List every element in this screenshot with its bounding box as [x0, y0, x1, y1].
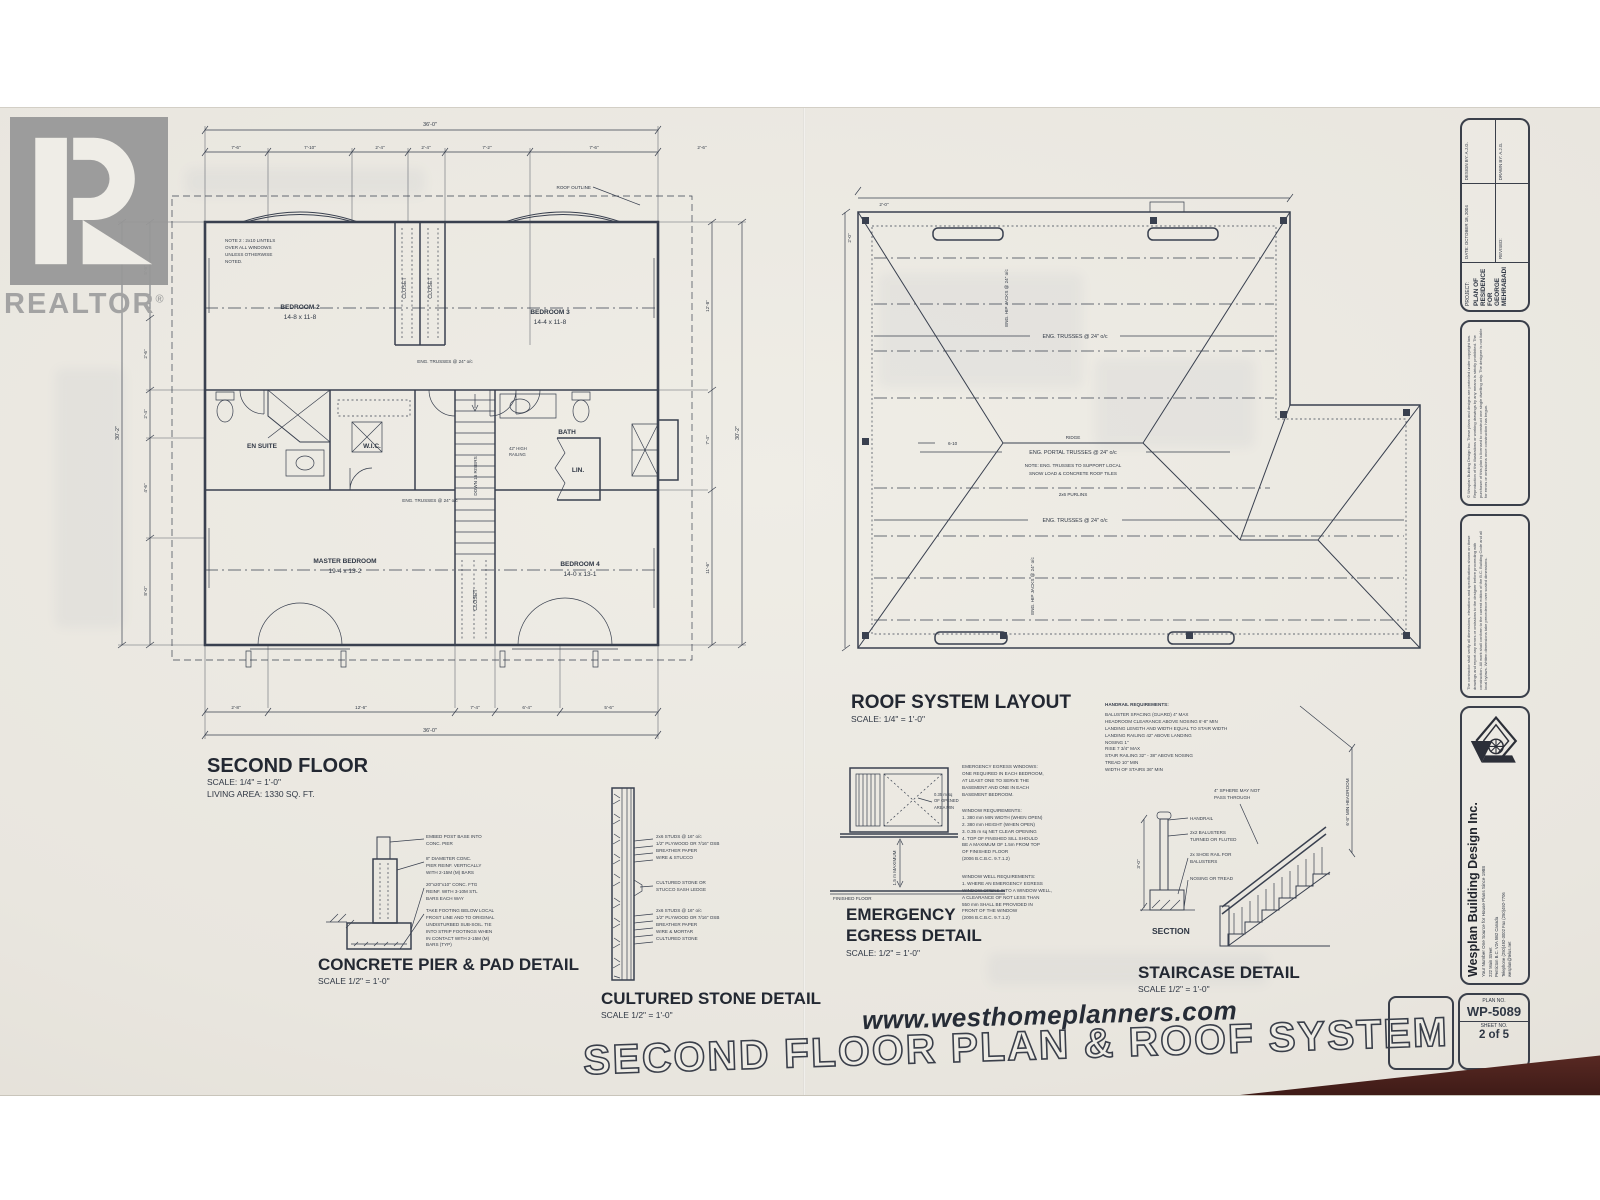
roof-note-2: SNOW LOAD & CONCRETE ROOF TILES — [1029, 471, 1117, 476]
dim-top-4: 2'-4" — [421, 145, 431, 150]
staircase-section-label: SECTION — [1152, 926, 1190, 936]
dim-left-4: 4'-6" — [143, 483, 148, 493]
realtor-r-icon — [10, 117, 168, 285]
sheet-no-value: 2 of 5 — [1460, 1029, 1528, 1041]
dim-left-3: 2'-4" — [143, 409, 148, 419]
cultured-stone-detail-drawing: CULTURED STONE DETAIL SCALE 1/2" = 1'-0" — [601, 788, 821, 1020]
pier-note-1: EMBED POST BASE INTO CONC. PIER — [426, 834, 536, 848]
dim-right-3: 11'-6" — [705, 562, 710, 574]
dim-top-right: 2'-6" — [697, 145, 707, 150]
room-label-bedroom4: BEDROOM 4 — [560, 561, 600, 568]
dim-bot-1: 2'-8" — [231, 705, 241, 710]
floor-plan-drawing: 36'-0" 7'-6" 7'-10" 2'-4" 2'-4" 7'-2" 7'… — [115, 122, 746, 799]
dim-right-1: 12'-8" — [705, 300, 710, 312]
staircase-scale: SCALE 1/2" = 1'-0" — [1138, 984, 1210, 994]
floor-plan-heading: SECOND FLOOR — [207, 755, 369, 777]
dim-left-total: 30'-2" — [115, 426, 121, 440]
room-label-ensuite: EN SUITE — [247, 443, 278, 450]
roof-plan-scale: SCALE: 1/4" = 1'-0" — [851, 714, 925, 724]
room-label-master: MASTER BEDROOM — [313, 558, 376, 565]
firm-logo-icon — [1469, 714, 1523, 768]
dim-top-1: 7'-6" — [231, 145, 241, 150]
dim-bot-2: 12'-6" — [355, 705, 367, 710]
staircase-handrail-label: HANDRAIL — [1190, 816, 1250, 823]
stone-notes-top: 2x6 STUDS @ 16" o/c 1/2" PLYWOOD OR 7/16… — [656, 834, 776, 862]
roof-ridge-label: RIDGE — [1066, 435, 1081, 440]
room-label-wic: W.I.C. — [363, 443, 381, 450]
lintel-note: NOTE 2 : 2x10 LINTELS OVER ALL WINDOWS U… — [225, 238, 320, 266]
egress-sill-dim: 1.5 m MAXIMUM — [892, 850, 897, 885]
pier-note-3: 20"x20"x10" CONC. FTG REINF. WITH 3-10M … — [426, 882, 536, 903]
roof-truss-label-2: ENG. TRUSSES @ 24" o/c — [1042, 518, 1107, 524]
roof-hipjack-label-1: ENG. HIP JACKS @ 24" o/c — [1004, 269, 1009, 327]
egress-heading-2: EGRESS DETAIL — [846, 926, 982, 945]
handrail-req-lines: BALUSTER SPACING (GUARD) 4" MAX HEADROOM… — [1105, 712, 1305, 774]
staircase-headroom-label: 6'-8" MIN HEADROOM — [1345, 778, 1350, 825]
roof-overhang-dim-2: 2'-0" — [847, 233, 852, 243]
railing-note: 42" HIGH RAILING — [509, 446, 555, 459]
titleblock-firm-box: Wesplan Building Design Inc. Your Number… — [1460, 706, 1530, 985]
dim-bottom-total: 36'-0" — [423, 728, 437, 734]
firm-address: 222 Main Street Penticton B.C. V2A 5B2 C… — [1488, 774, 1513, 977]
egress-heading-1: EMERGENCY — [846, 905, 956, 924]
project-line2: GEORGE MEHRABADI — [1494, 267, 1508, 306]
realtor-watermark-text: REALTOR® — [4, 288, 194, 321]
roof-truss-label-1: ENG. TRUSSES @ 24" o/c — [1042, 334, 1107, 340]
room-label-bedroom3: BEDROOM 3 — [530, 309, 570, 316]
project-heading: PROJECT: — [1465, 267, 1471, 306]
dim-top-total: 36'-0" — [423, 122, 437, 128]
staircase-shoe-label: 2x SHOE RAIL FOR BALUSTERS — [1190, 852, 1250, 866]
project-line1: PLAN OF RESIDENCE FOR — [1473, 267, 1494, 306]
dim-top-6: 7'-6" — [589, 145, 599, 150]
room-label-closet-1: CLOSET — [402, 277, 408, 299]
revision-box-empty — [1388, 996, 1454, 1070]
firm-name: Wesplan Building Design Inc. — [1466, 774, 1480, 977]
roof-overhang-dim: 2'-0" — [879, 202, 889, 207]
firm-tagline: Your Number One Source for House Plans S… — [1481, 774, 1486, 977]
dim-top-2: 7'-10" — [304, 145, 316, 150]
photographed-blueprint-page: 36'-0" 7'-6" 7'-10" 2'-4" 2'-4" 7'-2" 7'… — [0, 0, 1600, 1200]
dim-right-2: 7'-4" — [705, 435, 710, 445]
pier-note-4: TAKE FOOTING BELOW LOCAL FROST LINE AND … — [426, 908, 546, 949]
room-label-closet-3: CLOSET — [473, 589, 479, 611]
room-size-bedroom2: 14-8 x 11-8 — [284, 314, 317, 321]
blueprint-paper: 36'-0" 7'-6" 7'-10" 2'-4" 2'-4" 7'-2" 7'… — [0, 107, 1600, 1096]
project-date: DATE: OCTOBER 18, 2004 — [1462, 184, 1495, 262]
roof-note-1: NOTE: ENG. TRUSSES TO SUPPORT LOCAL — [1025, 463, 1122, 468]
registered-mark: ® — [155, 293, 165, 305]
staircase-nosing-label: NOSING OR TREAD — [1190, 876, 1250, 883]
room-label-closet-2: CLOSET — [428, 277, 434, 299]
roof-purlin-label: 2x6 PURLINS — [1059, 492, 1088, 497]
dim-top-5: 7'-2" — [482, 145, 492, 150]
egress-scale: SCALE: 1/2" = 1'-0" — [846, 948, 920, 958]
plan-no-value: WP-5089 — [1460, 1004, 1528, 1019]
roof-span-dim: 6-10 — [948, 441, 958, 446]
dim-left-2: 2'-6" — [143, 349, 148, 359]
realtor-watermark-logo — [10, 117, 168, 285]
truss-label-plan-1: ENG. TRUSSES @ 24" o/c — [417, 359, 473, 364]
roof-outline-label: ROOF OUTLINE — [557, 185, 591, 190]
realtor-wordmark: REALTOR — [4, 288, 155, 320]
dim-top-3: 2'-4" — [375, 145, 385, 150]
pier-detail-heading: CONCRETE PIER & PAD DETAIL — [318, 955, 579, 974]
room-size-bedroom4: 14-0 x 13-1 — [564, 571, 597, 578]
roof-plan-heading: ROOF SYSTEM LAYOUT — [851, 692, 1071, 713]
titleblock-copyright-box: © Wesplan Building Design Inc. These pla… — [1460, 320, 1530, 506]
roof-plan-drawing: 2'-0" 2'-0" 6-10 ENG. TRUSSES @ 24" o/c … — [842, 187, 1420, 724]
staircase-heading: STAIRCASE DETAIL — [1138, 963, 1300, 982]
roof-portal-label: ENG. PORTAL TRUSSES @ 24" o/c — [1029, 450, 1117, 456]
dim-right-total: 30'-2" — [735, 426, 741, 440]
staircase-baluster-label: 2x2 BALUSTERS TURNED OR FLUTED — [1190, 830, 1250, 844]
project-drawn-by: DRAWN BY: A.J.G. — [1495, 120, 1528, 183]
stone-note-mid: CULTURED STONE OR STUCCO SASH LEDGE — [656, 880, 776, 894]
dim-bot-5: 5'-6" — [604, 705, 614, 710]
truss-label-plan-2: ENG. TRUSSES @ 24" o/c — [402, 498, 458, 503]
dim-bot-4: 6'-4" — [522, 705, 532, 710]
titleblock-disclaimer-box: The contractor shall verify all dimensio… — [1460, 514, 1530, 698]
titleblock-project-box: PROJECT: PLAN OF RESIDENCE FOR GEORGE ME… — [1460, 118, 1530, 312]
room-label-bedroom2: BEDROOM 2 — [280, 304, 320, 311]
planno-divider — [1460, 1021, 1528, 1022]
room-label-bath: BATH — [558, 429, 576, 436]
room-size-bedroom3: 14-4 x 11-8 — [534, 319, 567, 326]
egress-para-2: WINDOW REQUIREMENTS: 1. 380 mm MIN WIDTH… — [962, 808, 1142, 863]
floor-plan-area: LIVING AREA: 1330 SQ. FT. — [207, 789, 315, 799]
pier-detail-scale: SCALE 1/2" = 1'-0" — [318, 976, 390, 986]
staircase-sphere-label: 4" SPHERE MAY NOT PASS THROUGH — [1214, 788, 1274, 802]
copyright-text: © Wesplan Building Design Inc. These pla… — [1462, 322, 1528, 504]
stone-detail-scale: SCALE 1/2" = 1'-0" — [601, 1010, 673, 1020]
stair-label: DOWN 16 RISERS — [473, 456, 478, 495]
egress-floor-label: FINISHED FLOOR — [833, 896, 872, 901]
floor-plan-scale: SCALE: 1/4" = 1'-0" — [207, 777, 281, 787]
handrail-req-heading: HANDRAIL REQUIREMENTS: — [1105, 702, 1295, 709]
room-label-linen: LIN. — [572, 467, 584, 474]
pier-note-2: 8" DIAMETER CONC. PIER REINF. VERTICALLY… — [426, 856, 536, 877]
stone-notes-bottom: 2x6 STUDS @ 16" o/c 1/2" PLYWOOD OR 7/16… — [656, 908, 776, 942]
project-design-by: DESIGN BY: A.J.G. — [1462, 120, 1495, 183]
disclaimer-text: The contractor shall verify all dimensio… — [1462, 516, 1528, 696]
egress-para-3: WINDOW WELL REQUIREMENTS: 1. WHERE AN EM… — [962, 874, 1142, 922]
roof-hipjack-label-2: ENG. HIP JACKS @ 24" o/c — [1030, 557, 1035, 615]
titleblock-planno-box: PLAN NO. WP-5089 SHEET NO. 2 of 5 — [1458, 993, 1530, 1070]
project-revised: REVISED: — [1495, 184, 1528, 262]
dim-bot-3: 7'-4" — [470, 705, 480, 710]
room-size-master: 19-4 x 13-2 — [329, 568, 362, 575]
dim-left-5: 8'-0" — [143, 586, 148, 596]
stone-detail-heading: CULTURED STONE DETAIL — [601, 989, 821, 1008]
